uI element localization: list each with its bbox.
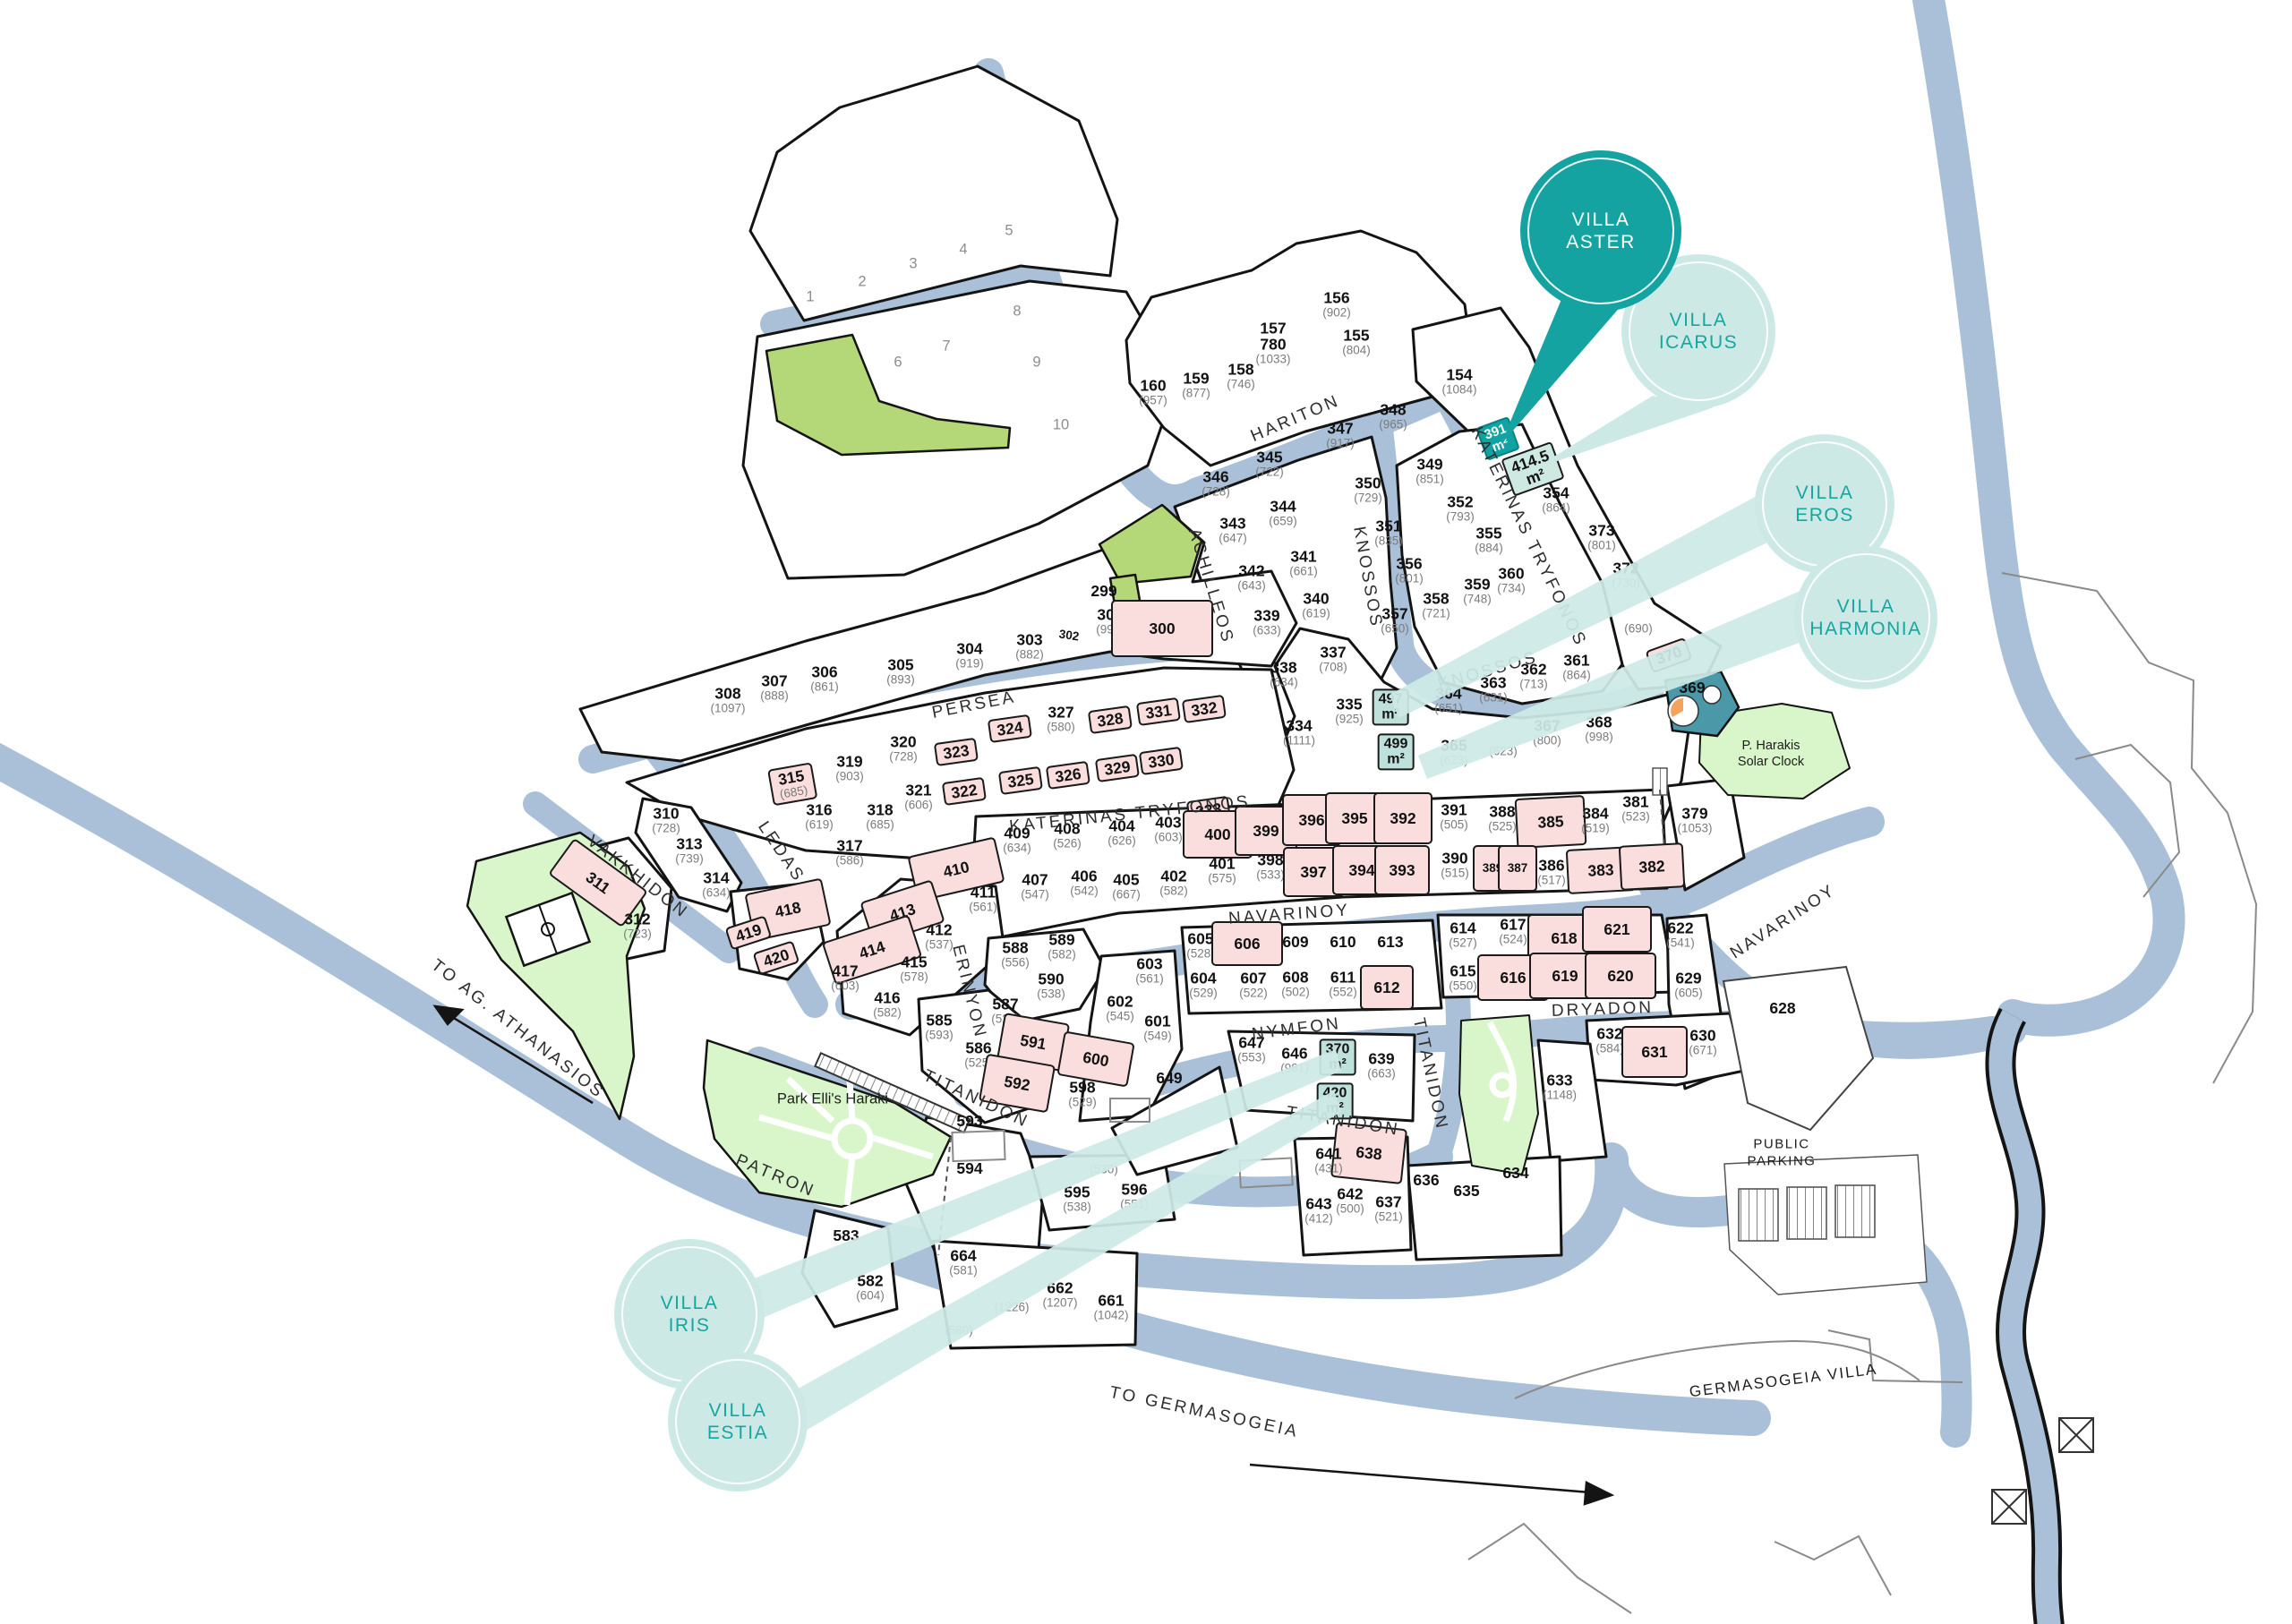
villa-markers-layer: VILLA ICARUSVILLA ASTERVILLA EROSVILLA H… bbox=[0, 0, 2292, 1624]
villa-marker-villa-harmonia[interactable]: VILLA HARMONIA bbox=[1794, 546, 1937, 689]
villa-label: VILLA ESTIA bbox=[707, 1399, 768, 1444]
villa-label: VILLA ICARUS bbox=[1659, 309, 1738, 354]
villa-label: VILLA ASTER bbox=[1566, 209, 1636, 253]
plot-map-canvas: 12345678910160(957)159(877)158(746)157 7… bbox=[0, 0, 2292, 1624]
villa-label: VILLA HARMONIA bbox=[1809, 595, 1921, 640]
villa-label: VILLA IRIS bbox=[661, 1292, 719, 1337]
villa-marker-villa-estia[interactable]: VILLA ESTIA bbox=[668, 1352, 808, 1492]
villa-marker-villa-aster[interactable]: VILLA ASTER bbox=[1520, 150, 1681, 312]
villa-label: VILLA EROS bbox=[1795, 482, 1854, 526]
